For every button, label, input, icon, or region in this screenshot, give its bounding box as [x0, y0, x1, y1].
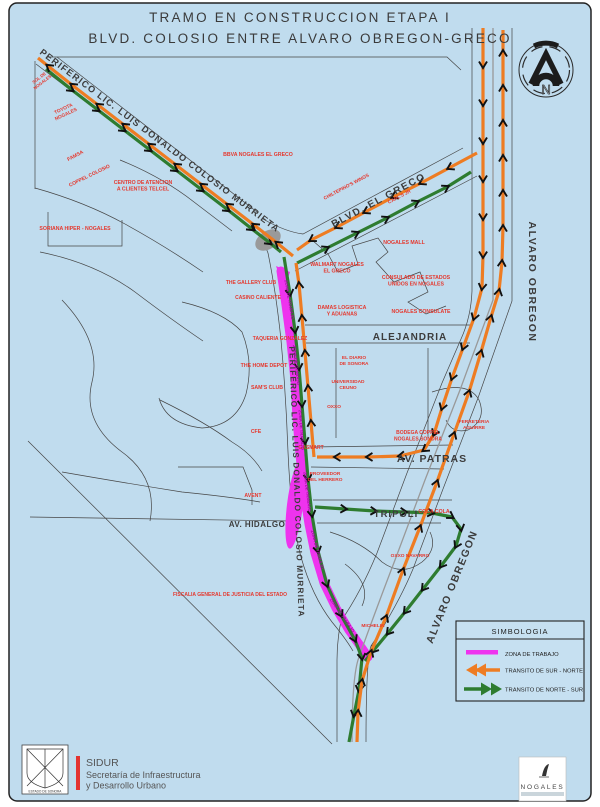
legend-item-label: TRANSITO DE SUR - NORTE: [505, 669, 583, 675]
sonora-state-seal: ESTADO DE SONORA: [22, 745, 68, 794]
map-title-line2: BLVD. COLOSIO ENTRE ALVARO OBREGON-GRECO: [88, 31, 511, 46]
poi-label: CONSULADO DE ESTADOSUNIDOS EN NOGALES: [382, 275, 451, 287]
poi-label: CASINO CALIENTE: [235, 295, 282, 301]
poi-label: BODEGA COPPELNOGALES SONORA: [394, 430, 442, 442]
poi-label: CFE: [251, 429, 262, 435]
agency-acronym: SIDUR: [86, 757, 119, 769]
poi-label: NOGALES MALL: [383, 240, 425, 246]
seal-caption: ESTADO DE SONORA: [29, 790, 63, 794]
red-bar: [76, 756, 80, 790]
poi-label: MICHELIN: [361, 623, 385, 629]
poi-label: AVENT: [244, 493, 262, 499]
poi-label: BBVA NOGALES EL GRECO: [223, 152, 293, 158]
street-label: AV. PATRAS: [397, 453, 467, 465]
construction-map: PERIFERICO LIC. LUIS DONALDO COLOSIO MUR…: [0, 0, 600, 807]
nogales-logo-text: NOGALES: [520, 784, 564, 791]
street-label: TRIPOLI: [374, 509, 418, 520]
poi-label: NOGALES CONSULATE: [392, 309, 452, 315]
poi-label: THE GALLERY CLUB: [226, 280, 277, 286]
poi-label: THE HOME DEPOT: [241, 363, 289, 369]
poi-label: SAM'S CLUB: [251, 385, 283, 391]
poi-label: TAQUERIA GONZALEZ: [253, 336, 307, 342]
compass-north-letter: N: [541, 82, 550, 97]
street-label: AV. HIDALGO: [229, 520, 286, 529]
legend-title: SIMBOLOGIA: [491, 627, 548, 636]
nogales-city-logo: NOGALES: [519, 757, 566, 801]
agency-name-line1: Secretaría de Infraestructura: [86, 770, 201, 780]
poi-label: OXXO: [327, 404, 341, 410]
poi-label: COCA COLA: [418, 509, 449, 515]
poi-label: SORIANA HIPER - NOGALES: [39, 226, 111, 232]
poi-label: OXXO NAVARRO: [391, 553, 430, 559]
workzone-swatch: [466, 650, 498, 655]
agency-name-line2: y Desarrollo Urbano: [86, 781, 166, 791]
legend-item-label: TRANSITO DE NORTE - SUR: [505, 688, 583, 694]
poi-label: CENTRO DE ATENCIONA CLIENTES TELCEL: [114, 180, 173, 192]
map-title-line1: TRAMO EN CONSTRUCCION ETAPA I: [149, 10, 451, 25]
construction-map-sheet: PERIFERICO LIC. LUIS DONALDO COLOSIO MUR…: [0, 0, 600, 807]
street-label: ALVARO OBREGON: [526, 222, 538, 343]
poi-label: FISCALIA GENERAL DE JUSTICIA DEL ESTADO: [173, 592, 287, 598]
street-label: ALEJANDRIA: [373, 332, 447, 343]
legend-item-label: ZONA DE TRABAJO: [505, 652, 559, 658]
legend: SIMBOLOGIA ZONA DE TRABAJO TRANSITO DE S…: [456, 621, 584, 701]
